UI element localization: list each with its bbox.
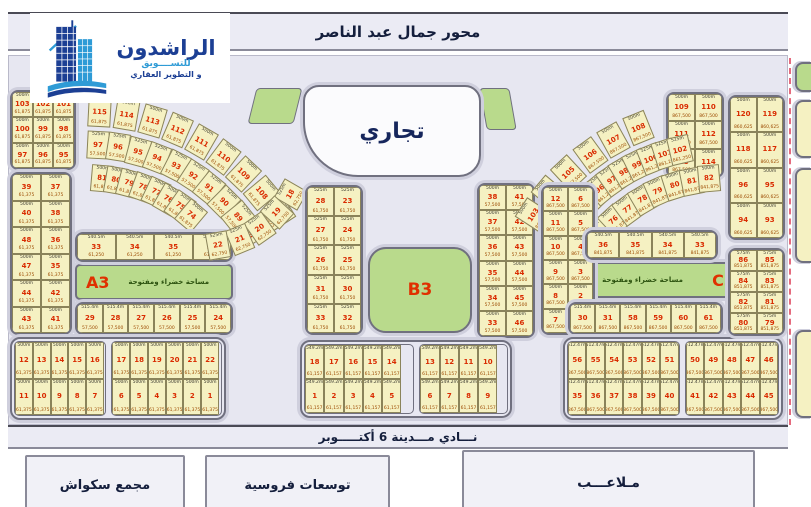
plot-cluster-L3-strip: 500m3961,375500m3761,375500m4061,375500m… <box>10 172 72 335</box>
plot-37: 512.47m37867,500 <box>605 379 623 416</box>
plot-44: 500m4457,500 <box>506 261 533 286</box>
plot-12: 500m1261,375 <box>15 342 33 379</box>
zone-b3: B3 <box>368 247 472 333</box>
zone-a3-note: مساحة خضراء ومفتوحة <box>116 278 222 286</box>
plot-114: 500m11461,875 <box>112 99 140 132</box>
plot-6: 500m661,375 <box>112 379 130 416</box>
plot-81: 575m81851,875 <box>757 292 784 313</box>
plot-12: 549.2m1261,157 <box>440 345 459 379</box>
facility-courts-label: مـلاعـــب <box>577 475 640 491</box>
plot-8: 500m8867,500 <box>543 284 568 308</box>
plot-16: 500m1661,375 <box>86 342 104 379</box>
plot-18: 500m1861,375 <box>130 342 148 379</box>
plot-100: 500m10061,875 <box>12 117 33 142</box>
plot-23: 525m2361,750 <box>334 187 361 216</box>
plot-44: 500m4461,375 <box>12 280 41 307</box>
plot-15: 500m1561,375 <box>68 342 86 379</box>
green-patch-left <box>248 88 303 124</box>
plot-33: 500m3357,500 <box>479 311 506 336</box>
plot-59: 515.4m59867,500 <box>646 304 671 333</box>
edge-plot-block-3 <box>795 330 811 418</box>
plot-39: 512.47m39867,500 <box>642 379 660 416</box>
plot-98: 500m9861,875 <box>53 117 74 142</box>
plot-26: 525m2661,750 <box>307 245 334 274</box>
master-plan-page: محور جمال عبد الناصر نـــادي مـــدينة 6 … <box>0 0 811 507</box>
plot-4: 500m461,375 <box>148 379 166 416</box>
plot-48: 512.47m48867,500 <box>723 342 741 379</box>
plot-22: 525m2262,750 <box>205 230 231 260</box>
plot-35: 500m3557,500 <box>479 261 506 286</box>
plot-37: 500m3757,500 <box>479 210 506 235</box>
plot-37: 500m3761,375 <box>41 174 70 201</box>
facility-courts: مـلاعـــب <box>462 450 755 507</box>
plot-109: 500m109867,500 <box>668 94 695 121</box>
plot-33: 540.5m33841,875 <box>684 232 716 258</box>
plot-25: 515.4m2557,500 <box>180 304 206 333</box>
logo-building-icon <box>44 18 110 98</box>
plot-cluster-C-bottom: 549.2m1861,157549.2m1761,157549.2m1661,1… <box>300 340 512 418</box>
plot-30: 525m3061,750 <box>334 275 361 304</box>
plot-9: 500m961,375 <box>51 379 69 416</box>
plot-95: 500m95860,625 <box>757 168 784 203</box>
plot-47: 500m4761,375 <box>12 254 41 281</box>
plot-cluster-R8-bottom: 512.47m56867,500512.47m55867,500512.47m5… <box>563 337 783 420</box>
plot-28: 515.4m2857,500 <box>103 304 129 333</box>
facility-equestrian-label: توسعات فروسية <box>244 478 350 493</box>
plot-1: 549.2m161,157 <box>305 379 324 413</box>
plot-36: 500m3661,375 <box>41 227 70 254</box>
plot-84: 575m84851,875 <box>730 271 757 292</box>
plot-2: 549.2m261,157 <box>324 379 343 413</box>
plot-96: 500m9661,875 <box>33 143 54 168</box>
plot-31: 515.4m31867,500 <box>595 304 620 333</box>
plot-35: 540.5m3561,250 <box>154 234 193 260</box>
plot-43: 500m4361,375 <box>12 307 41 334</box>
plot-36: 540.5m36841,875 <box>587 232 619 258</box>
plot-10: 549.2m1061,157 <box>478 345 497 379</box>
plot-5: 500m561,375 <box>130 379 148 416</box>
plot-46: 500m4657,500 <box>506 311 533 336</box>
plot-28: 525m2861,750 <box>307 187 334 216</box>
plot-94: 500m94860,625 <box>730 203 757 238</box>
commercial-zone: تجاري <box>303 85 481 177</box>
plot-45: 500m4557,500 <box>506 286 533 311</box>
plot-54: 512.47m54867,500 <box>605 342 623 379</box>
plot-14: 500m1461,375 <box>51 342 69 379</box>
axis-road-label: محور جمال عبد الناصر <box>316 23 481 41</box>
plot-34: 500m3457,500 <box>479 286 506 311</box>
plot-33: 525m3361,750 <box>307 304 334 333</box>
plot-93: 500m93860,625 <box>757 203 784 238</box>
plot-3: 500m3867,500 <box>568 260 593 284</box>
zone-a3: A3 مساحة خضراء ومفتوحة <box>75 264 233 300</box>
commercial-label: تجاري <box>359 119 424 144</box>
plot-40: 500m4061,375 <box>12 201 41 228</box>
plot-18: 549.2m1861,157 <box>305 345 324 379</box>
plot-3: 549.2m361,157 <box>344 379 363 413</box>
plot-10: 500m1061,375 <box>33 379 51 416</box>
plot-119: 500m119860,625 <box>757 97 784 132</box>
plot-36: 500m3657,500 <box>479 235 506 260</box>
plot-32: 525m3261,750 <box>334 304 361 333</box>
plot-118: 500m118860,625 <box>730 132 757 167</box>
plot-44: 512.47m44867,500 <box>741 379 759 416</box>
club-road-band: نـــادي مـــدينة 6 أكتـــــوبر <box>8 425 788 449</box>
plot-35: 500m3561,375 <box>41 254 70 281</box>
plot-97: 500m9761,875 <box>12 143 33 168</box>
plot-29: 515.4m2957,500 <box>77 304 103 333</box>
plot-3: 500m361,375 <box>166 379 184 416</box>
plot-58: 515.4m58867,500 <box>620 304 645 333</box>
facility-squash-label: مجمع سكواش <box>60 478 150 493</box>
zone-c3-note: مساحة خضراء ومفتوحة <box>579 276 706 284</box>
plot-8: 500m861,375 <box>68 379 86 416</box>
plot-35: 540.5m35841,875 <box>619 232 651 258</box>
plot-35: 512.47m35867,500 <box>568 379 586 416</box>
plot-8: 549.2m861,157 <box>459 379 478 413</box>
plot-43: 500m4357,500 <box>506 235 533 260</box>
facility-squash: مجمع سكواش <box>25 455 185 507</box>
plot-42: 500m4261,375 <box>41 280 70 307</box>
plot-39: 500m3961,375 <box>12 174 41 201</box>
plot-49: 512.47m49867,500 <box>704 342 722 379</box>
plot-48: 500m4861,375 <box>12 227 41 254</box>
plot-cluster-R5-row: 540.5m36841,875540.5m35841,875540.5m3484… <box>585 230 718 260</box>
plot-cluster-C-left: 525m2861,750525m2361,750525m2761,750525m… <box>305 185 363 335</box>
plot-41: 500m4161,375 <box>41 307 70 334</box>
plot-12: 500m12867,500 <box>543 187 568 211</box>
plot-50: 512.47m50867,500 <box>686 342 704 379</box>
plot-38: 500m3857,500 <box>479 185 506 210</box>
plot-36: 512.47m36867,500 <box>586 379 604 416</box>
plot-55: 512.47m55867,500 <box>586 342 604 379</box>
plot-cluster-L7-row: 515.4m2957,500515.4m2857,500515.4m2757,5… <box>75 302 233 335</box>
plot-112: 500m112867,500 <box>695 121 722 148</box>
plot-cluster-L8-bottom: 500m1261,375500m1361,375500m1461,375500m… <box>10 337 226 420</box>
plot-45: 512.47m45867,500 <box>760 379 778 416</box>
facility-equestrian: توسعات فروسية <box>205 455 390 507</box>
plot-21: 500m2161,375 <box>183 342 201 379</box>
plot-30: 515.4m30867,500 <box>570 304 595 333</box>
plot-27: 525m2761,750 <box>307 216 334 245</box>
plot-43: 512.47m43867,500 <box>723 379 741 416</box>
plot-15: 549.2m1561,157 <box>363 345 382 379</box>
plot-38: 512.47m38867,500 <box>623 379 641 416</box>
plot-79: 575m79851,875 <box>757 313 784 334</box>
edge-plot-block-2 <box>795 168 811 263</box>
plot-7: 549.2m761,157 <box>440 379 459 413</box>
plot-1: 500m161,375 <box>201 379 219 416</box>
plot-9: 549.2m961,157 <box>478 379 497 413</box>
plot-10: 500m10867,500 <box>543 236 568 260</box>
plot-86: 575m86851,875 <box>730 250 757 271</box>
plot-4: 549.2m461,157 <box>363 379 382 413</box>
zone-a3-label: A3 <box>86 273 110 292</box>
plot-82: 500m82841,875 <box>697 164 721 193</box>
logo-title: الراشدون <box>116 37 215 59</box>
plot-25: 525m2561,750 <box>334 245 361 274</box>
plot-17: 549.2m1761,157 <box>324 345 343 379</box>
plot-20: 500m2061,375 <box>166 342 184 379</box>
plot-22: 500m2261,375 <box>201 342 219 379</box>
plot-2: 500m261,375 <box>183 379 201 416</box>
plot-85: 575m85851,875 <box>757 250 784 271</box>
plot-cluster-R3b-strip: 575m86851,875575m85851,875575m84851,8755… <box>728 248 785 336</box>
plot-42: 512.47m42867,500 <box>704 379 722 416</box>
plot-80: 575m80851,875 <box>730 313 757 334</box>
plot-56: 512.47m56867,500 <box>568 342 586 379</box>
club-road-label: نـــادي مـــدينة 6 أكتـــــوبر <box>319 430 478 444</box>
plot-60: 515.4m60867,500 <box>671 304 696 333</box>
plot-19: 500m1961,375 <box>148 342 166 379</box>
plot-53: 512.47m53867,500 <box>623 342 641 379</box>
plot-51: 512.47m51867,500 <box>660 342 678 379</box>
plot-38: 500m3861,375 <box>41 201 70 228</box>
plot-11: 549.2m1161,157 <box>459 345 478 379</box>
plot-24: 515.4m2457,500 <box>205 304 231 333</box>
plot-5: 549.2m561,157 <box>382 379 401 413</box>
plot-7: 500m7867,500 <box>543 309 568 333</box>
plot-52: 512.47m52867,500 <box>642 342 660 379</box>
plot-99: 500m9961,875 <box>33 117 54 142</box>
zone-b3-label: B3 <box>408 280 433 300</box>
plot-17: 500m1761,375 <box>112 342 130 379</box>
plot-7: 500m761,375 <box>86 379 104 416</box>
logo-text: الراشدون للتســــويق و التطوير العقاري <box>116 37 215 79</box>
plot-95: 500m9561,875 <box>53 143 74 168</box>
plot-6: 500m6867,500 <box>568 187 593 211</box>
plot-cluster-R3a-strip: 500m120860,625500m119860,625500m118860,6… <box>728 95 785 240</box>
plot-61: 515.4m61867,500 <box>696 304 721 333</box>
plot-34: 540.5m34841,875 <box>652 232 684 258</box>
logo-tagline-2: و التطوير العقاري <box>116 70 215 80</box>
developer-logo: الراشدون للتســــويق و التطوير العقاري <box>30 13 230 103</box>
plot-83: 575m83851,875 <box>757 271 784 292</box>
plot-96: 500m96860,625 <box>730 168 757 203</box>
plot-40: 512.47m40867,500 <box>660 379 678 416</box>
plot-110: 500m110867,500 <box>695 94 722 121</box>
boundary-dashed-line <box>789 58 791 425</box>
plot-11: 500m11867,500 <box>543 211 568 235</box>
plot-82: 575m82851,875 <box>730 292 757 313</box>
plot-24: 525m2461,750 <box>334 216 361 245</box>
plot-6: 549.2m661,157 <box>420 379 439 413</box>
plot-117: 500m117860,625 <box>757 132 784 167</box>
plot-41: 512.47m41867,500 <box>686 379 704 416</box>
edge-green-block <box>795 62 811 92</box>
plot-46: 512.47m46867,500 <box>760 342 778 379</box>
plot-34: 540.5m3461,250 <box>116 234 155 260</box>
plot-13: 500m1361,375 <box>33 342 51 379</box>
plot-31: 525m3161,750 <box>307 275 334 304</box>
plot-120: 500m120860,625 <box>730 97 757 132</box>
plot-27: 515.4m2757,500 <box>128 304 154 333</box>
plot-33: 540.5m3361,250 <box>77 234 116 260</box>
plot-16: 549.2m1661,157 <box>344 345 363 379</box>
plot-cluster-R7-row: 515.4m30867,500515.4m31867,500515.4m5886… <box>568 302 723 335</box>
logo-tagline-1: للتســــويق <box>116 59 215 70</box>
plot-11: 500m1161,375 <box>15 379 33 416</box>
plot-14: 549.2m1461,157 <box>382 345 401 379</box>
plot-26: 515.4m2657,500 <box>154 304 180 333</box>
plot-13: 549.2m1361,157 <box>420 345 439 379</box>
edge-plot-block-1 <box>795 100 811 158</box>
plot-47: 512.47m47867,500 <box>741 342 759 379</box>
plot-9: 500m9867,500 <box>543 260 568 284</box>
